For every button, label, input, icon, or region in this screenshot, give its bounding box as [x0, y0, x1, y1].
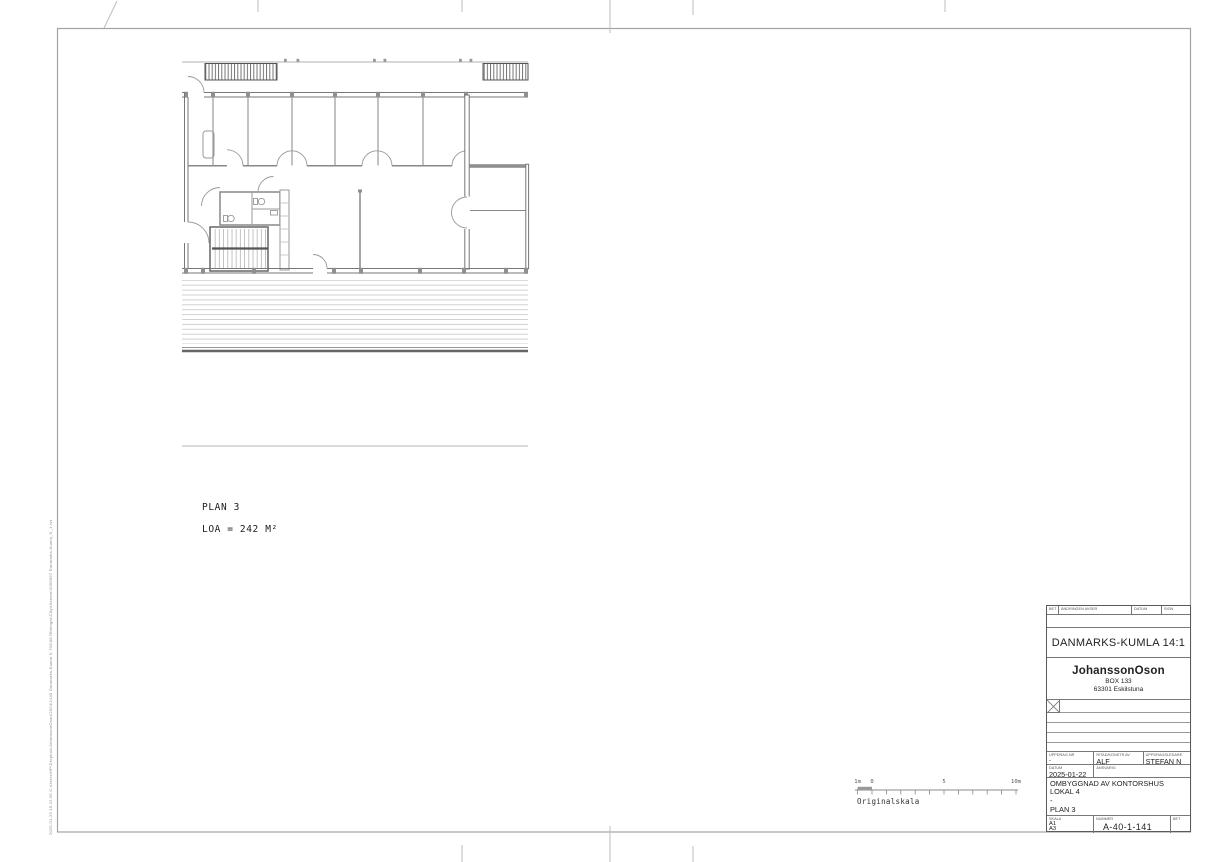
sheet-graphics [0, 0, 1220, 862]
staircase [210, 227, 268, 271]
object-title-2: LOKAL 4 [1050, 788, 1190, 797]
canopy-hatch-right [483, 64, 528, 81]
uppdragsledare-value: STEFAN N [1144, 758, 1190, 765]
scalebar-label-5: 5 [942, 779, 945, 785]
rev-bet-label: BET [1047, 606, 1058, 612]
plan-area-label: LOA = 242 M² [202, 524, 278, 535]
canopy-hatch-left [205, 64, 277, 81]
scalebar-caption: Originalskala [857, 797, 920, 806]
scalebar-label-1m: 1m [854, 779, 861, 785]
rev-avser-label: ÄNDRINGEN AVSER [1059, 606, 1131, 612]
entrance-door-arc [188, 77, 204, 93]
drawing-sheet: PLAN 3 LOA = 242 M² 1m 0 5 10m Originals… [0, 0, 1220, 862]
object-title-4: PLAN 3 [1050, 806, 1190, 815]
scalebar-label-0: 0 [870, 779, 873, 785]
property-name: DANMARKS-KUMLA 14:1 [1047, 628, 1190, 658]
revision-cross-box [1047, 700, 1060, 713]
ansvarig-label: ANSVARIG [1094, 765, 1190, 771]
wall-niche [203, 131, 214, 158]
rev-datum-label: DATUM [1132, 606, 1161, 612]
ritad-value: ALF [1094, 758, 1142, 765]
company-box: BOX 133 [1105, 678, 1131, 685]
office-door-arcs [227, 150, 467, 166]
datum-value: 2025-01-22 [1047, 771, 1093, 778]
scale-bar [855, 787, 1018, 795]
fields-row-1: UPPDRAG.NR - RITAD/KONSTR AV ALF UPPDRAG… [1047, 752, 1190, 765]
fold-marks [104, 0, 945, 862]
uppdragnr-value: - [1047, 758, 1093, 765]
scalebar-label-10m: 10m [1011, 779, 1021, 785]
rev-sign-label: SIGN [1162, 606, 1190, 612]
revision-header-row: BET ÄNDRINGEN AVSER DATUM SIGN [1047, 606, 1190, 615]
bet-label: BET [1171, 816, 1190, 822]
company-city: 63301 Eskilstuna [1094, 686, 1144, 693]
bottom-row: SKALA A1 A3 NUMMER A-40-1-141 BET [1047, 816, 1190, 833]
company-block: JohanssonOson BOX 133 63301 Eskilstuna [1047, 658, 1190, 700]
nummer-value: A-40-1-141 [1094, 822, 1170, 832]
revision-empty-row [1047, 615, 1190, 628]
shaft [280, 190, 289, 270]
object-description: OMBYGGNAD AV KONTORSHUS LOKAL 4 - PLAN 3 [1047, 778, 1190, 816]
revision-rows [1047, 700, 1190, 752]
skala-a3: A3 [1047, 827, 1093, 833]
wc-block [202, 177, 281, 226]
title-block: BET ÄNDRINGEN AVSER DATUM SIGN DANMARKS-… [1046, 605, 1191, 832]
company-name: JohanssonOson [1072, 665, 1165, 677]
sheet-border [58, 29, 1191, 833]
fields-row-2: DATUM 2025-01-22 ANSVARIG [1047, 765, 1190, 778]
plot-stamp: 2025-01-29 15:22:26 C:\Users\HP\Dropbox\… [48, 520, 53, 835]
deck-hatch [182, 280, 528, 344]
plan-title-label: PLAN 3 [202, 502, 240, 513]
floor-plan-drawing [182, 59, 529, 446]
